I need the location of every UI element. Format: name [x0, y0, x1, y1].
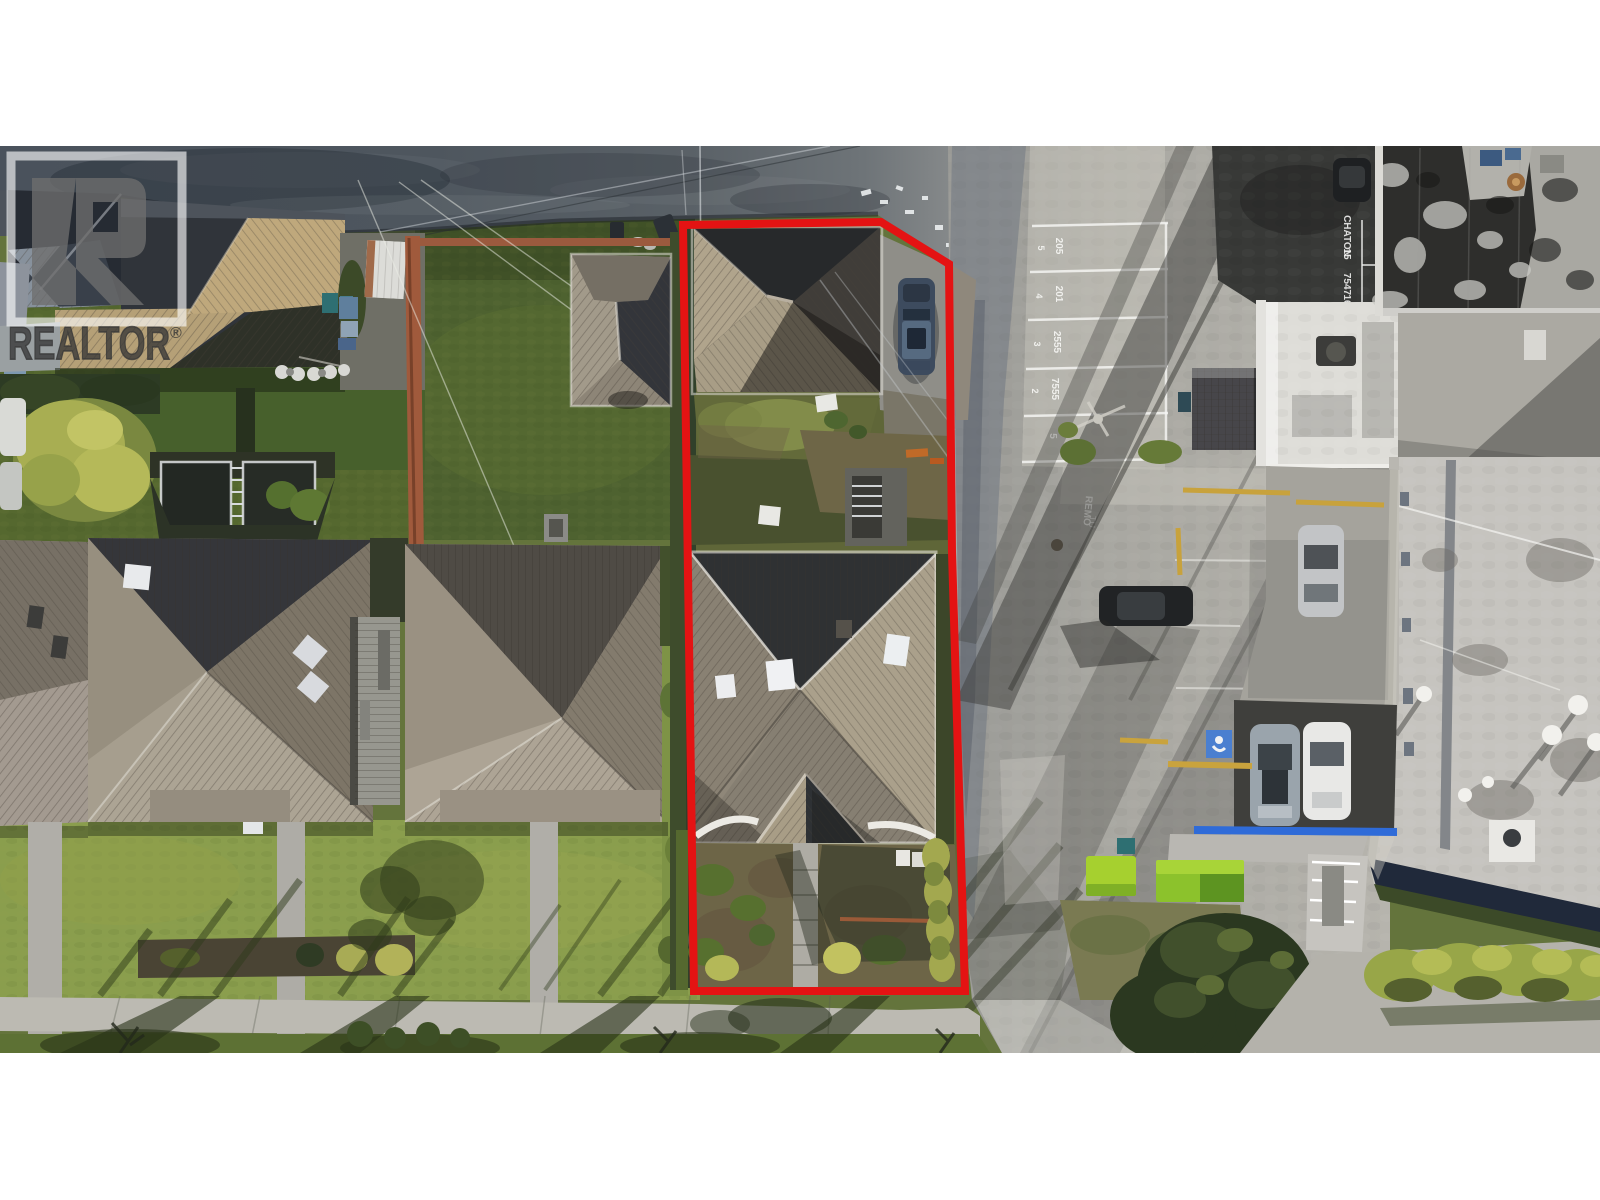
svg-text:15: 15	[1341, 248, 1352, 260]
svg-text:7555: 7555	[1049, 378, 1060, 401]
svg-text:5: 5	[1036, 245, 1046, 250]
svg-text:3: 3	[1032, 341, 1042, 346]
svg-text:2555: 2555	[1051, 331, 1062, 354]
svg-text:7547: 7547	[1341, 273, 1352, 296]
svg-text:201: 201	[1053, 286, 1064, 303]
svg-text:REALTOR: REALTOR	[8, 317, 170, 369]
svg-text:205: 205	[1053, 238, 1064, 255]
svg-text:®: ®	[170, 325, 182, 342]
svg-text:4: 4	[1034, 293, 1044, 298]
svg-text:2: 2	[1030, 388, 1040, 393]
